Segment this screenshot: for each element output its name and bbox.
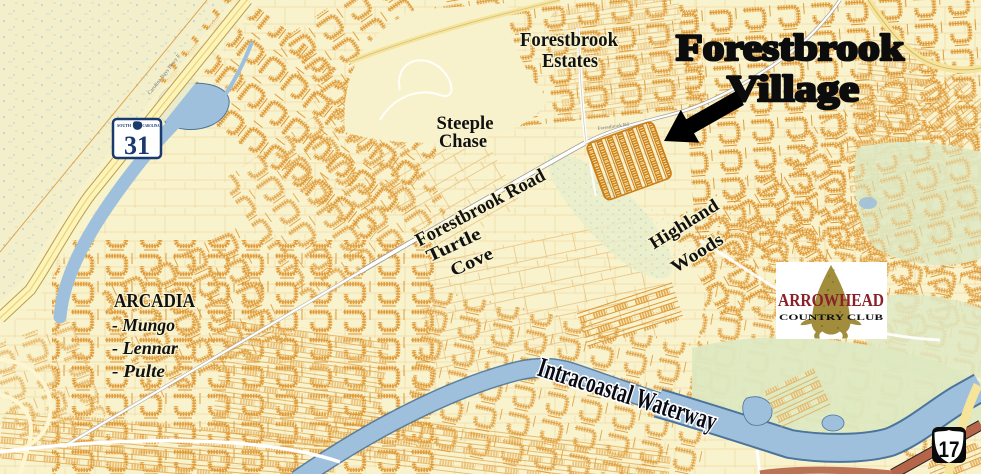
svg-text:CAROLINA: CAROLINA	[143, 123, 161, 128]
svg-text:ARCADIA: ARCADIA	[114, 290, 195, 312]
svg-text:COUNTRY CLUB: COUNTRY CLUB	[779, 313, 884, 322]
svg-text:Village: Village	[727, 69, 859, 110]
svg-text:31: 31	[124, 131, 150, 160]
svg-text:SOUTH: SOUTH	[117, 123, 131, 128]
svg-text:Estates: Estates	[542, 50, 598, 72]
svg-text:ARROWHEAD: ARROWHEAD	[778, 290, 884, 310]
svg-text:- Mungo: - Mungo	[112, 315, 175, 335]
svg-text:- Pulte: - Pulte	[112, 361, 165, 381]
svg-text:Chase: Chase	[439, 131, 487, 152]
svg-text:Forestbrook: Forestbrook	[676, 28, 904, 69]
svg-text:17: 17	[939, 437, 960, 462]
svg-text:Forestbrook: Forestbrook	[520, 29, 619, 51]
svg-text:- Lennar: - Lennar	[112, 338, 179, 358]
